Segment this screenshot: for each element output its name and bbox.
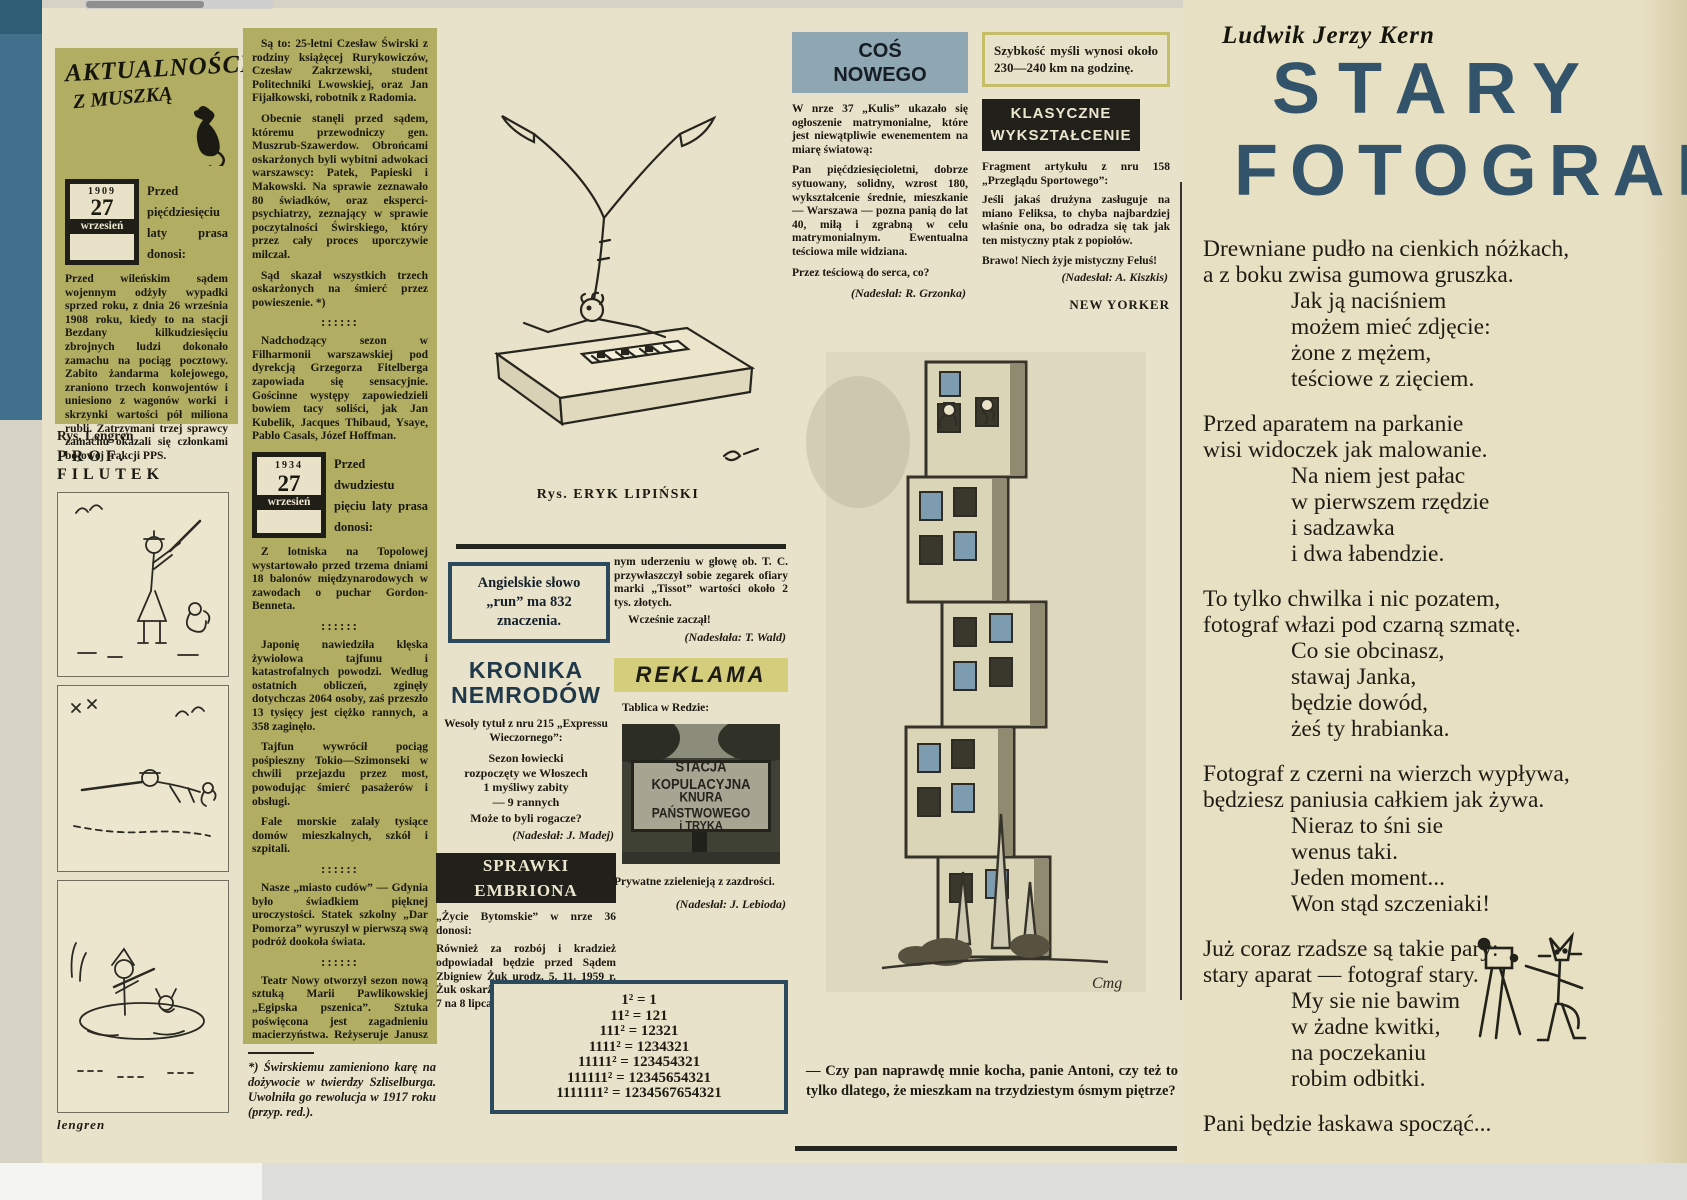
sprawki-credit: (Nadesłała: T. Wald) xyxy=(614,630,786,645)
footnote-rule xyxy=(248,1052,314,1054)
math-line: 111² = 12321 xyxy=(494,1024,784,1040)
lengren-signature: lengren xyxy=(57,1117,229,1133)
kronika-title: KRONIKA NEMRODÓW xyxy=(436,658,616,708)
klasyczne-banner: KLASYCZNE WYKSZTAŁCENIE xyxy=(982,99,1140,151)
poem-line: Jeden moment... xyxy=(1291,865,1687,891)
klasyczne-banner-line2: WYKSZTAŁCENIE xyxy=(990,127,1131,144)
filutek-title: PROF. FILUTEK xyxy=(57,448,229,484)
lead-1934: Przed dwudziestu pięciu laty prasa donos… xyxy=(334,452,428,538)
poem-title-line2: FOTOGRAF xyxy=(1234,130,1687,212)
reklama-body: Prywatne zzielenieją z zazdrości. xyxy=(614,876,788,890)
column-press-history: Są to: 25-letni Czesław Świrski z rodzin… xyxy=(243,28,437,1044)
poem-line: żone z mężem, xyxy=(1291,340,1687,366)
new-yorker-label: NEW YORKER xyxy=(982,297,1170,313)
sprawki-punchline: Wcześnie zaczął! xyxy=(614,614,788,628)
comic-panel-2-drawing xyxy=(58,686,226,866)
footnote-block: *) Świrskiemu zamieniono karę na dożywoc… xyxy=(248,1052,436,1120)
poem-line: Won stąd szczeniaki! xyxy=(1291,891,1687,917)
column-aktualnosci: AKTUALNOŚCI Z MUSZKĄ 1909 27 wrzesień Pr… xyxy=(55,48,238,424)
press-para-b: Obecnie stanęli przed sądem, któremu prz… xyxy=(252,113,428,263)
press-para-h: Fale morskie zalały tysiące domów mieszk… xyxy=(252,816,428,857)
comic-panel-1 xyxy=(57,492,229,677)
poem-closing-line: Pani będzie łaskawa spocząć... xyxy=(1203,1111,1687,1137)
sprawki-intro: „Życie Bytomskie” w nrze 36 donosi: xyxy=(436,911,616,938)
math-line: 11² = 121 xyxy=(494,1009,784,1025)
calendar-1934: 1934 27 wrzesień xyxy=(252,452,326,538)
poem-line: Nieraz to śni sie xyxy=(1291,813,1687,839)
klasyczne-credit: (Nadesłał: A. Kiszkis) xyxy=(982,270,1168,285)
poem-line: Przed aparatem na parkanie xyxy=(1203,411,1687,437)
kronika-quote-3: 1 myśliwy zabity xyxy=(436,780,616,795)
comic-panel-2 xyxy=(57,685,229,872)
reklama-credit: (Nadesłał: J. Lebioda) xyxy=(614,897,786,912)
sprawki-continued: nym uderzeniu w głowę ob. T. C. przywłas… xyxy=(614,556,788,610)
new-yorker-caption: — Czy pan naprawdę mnie kocha, panie Ant… xyxy=(806,1062,1178,1101)
cos-para-1: W nrze 37 „Kulis” ukazało się ogłoszenie… xyxy=(792,103,968,157)
conductor-cartoon xyxy=(442,36,794,482)
sprawki-banner: SPRAWKI EMBRIONA xyxy=(436,853,616,903)
artist-credit-lengren: Rys. Lengren xyxy=(57,428,229,444)
poem-line: To tylko chwilka i nic pozatem, xyxy=(1203,586,1687,612)
bottom-scan-corner xyxy=(0,1163,262,1200)
kronika-title-line1: KRONIKA xyxy=(469,657,583,683)
poem-stanza-1: Drewniane pudło na cienkich nóżkach, a z… xyxy=(1203,236,1687,392)
page-fold-line xyxy=(1180,182,1182,1000)
sign-line-3: i TRYKA xyxy=(634,819,768,832)
klasyczne-para-3: Brawo! Niech żyje mistyczny Feluś! xyxy=(982,255,1170,269)
poem-line: fotograf włazi pod czarną szmatę. xyxy=(1203,612,1687,638)
reklama-banner: REKLAMA xyxy=(614,658,788,692)
left-edge-strip xyxy=(0,0,42,420)
calendar-day: 27 xyxy=(70,197,134,219)
poem-author: Ludwik Jerzy Kern xyxy=(1222,22,1435,50)
date-block-1909: 1909 27 wrzesień Przed pięćdziesięciu la… xyxy=(65,179,228,265)
station-sign: STACJA KOPULACYJNA KNURA PAŃSTWOWEGO i T… xyxy=(631,760,771,832)
kronika-punchline: Może to byli rogacze? xyxy=(436,811,616,826)
dots-separator: :::::: xyxy=(252,864,428,873)
poem-line: stary aparat — fotograf stary. xyxy=(1203,962,1687,988)
poem-line: wisi widoczek jak malowanie. xyxy=(1203,437,1687,463)
poem-stanza-2: Przed aparatem na parkanie wisi widoczek… xyxy=(1203,411,1687,567)
dots-separator: :::::: xyxy=(252,621,428,630)
cos-banner-line1: COŚ xyxy=(858,40,901,62)
poem-line: będzie dowód, xyxy=(1291,690,1687,716)
poem-line: będziesz paniusia całkiem jak żywa. xyxy=(1203,787,1687,813)
sign-photo: STACJA KOPULACYJNA KNURA PAŃSTWOWEGO i T… xyxy=(622,724,780,864)
poem-line: a z boku zwisa gumowa gruszka. xyxy=(1203,262,1687,288)
calendar-month: wrzesień xyxy=(70,219,134,234)
cos-para-2: Pan pięćdziesięcioletni, dobrze sytuowan… xyxy=(792,164,968,259)
column-filutek: Rys. Lengren PROF. FILUTEK xyxy=(57,428,229,1133)
new-yorker-cartoon: Cmg xyxy=(796,352,1172,1052)
comic-panel-3-drawing xyxy=(58,881,226,1107)
klasyczne-para-1: Fragment artykułu z nru 158 „Przeglądu S… xyxy=(982,161,1170,188)
poem-line: Na niem jest pałac xyxy=(1291,463,1687,489)
dots-separator: :::::: xyxy=(252,957,428,966)
lead-1909: Przed pięćdziesięciu laty prasa donosi: xyxy=(147,179,228,265)
poem-line: żeś ty hrabianka. xyxy=(1291,716,1687,742)
section-rule xyxy=(456,544,786,549)
poem-stanza-5: Już coraz rzadsze są takie pary: stary a… xyxy=(1203,936,1687,1092)
column-reklama: nym uderzeniu w głowę ob. T. C. przywłas… xyxy=(614,556,788,920)
column-kronika: Angielskie słowo „run” ma 832 znaczenia.… xyxy=(436,556,616,1011)
press-para-g: Tajfun wywrócił pociąg pośpieszny Tokio—… xyxy=(252,741,428,809)
lipinski-credit: Rys. ERYK LIPIŃSKI xyxy=(442,487,794,503)
poem-line: w pierwszem rzędzie xyxy=(1291,489,1687,515)
poem-line: i dwa łabendzie. xyxy=(1291,541,1687,567)
mouse-icon xyxy=(186,102,230,166)
poem-title-line1: STARY xyxy=(1272,48,1598,130)
comic-panel-1-drawing xyxy=(58,493,226,671)
poem-line: robim odbitki. xyxy=(1291,1066,1687,1092)
kronika-title-line2: NEMRODÓW xyxy=(451,682,601,708)
poem-stanza-3: To tylko chwilka i nic pozatem, fotograf… xyxy=(1203,586,1687,742)
fact-box-run: Angielskie słowo „run” ma 832 znaczenia. xyxy=(448,562,610,643)
math-line: 11111² = 123454321 xyxy=(494,1055,784,1071)
dots-separator: :::::: xyxy=(252,317,428,326)
reklama-intro: Tablica w Redzie: xyxy=(614,702,788,716)
photographer-doodle xyxy=(1468,916,1598,1066)
kronika-credit: (Nadesłał: J. Madej) xyxy=(436,828,614,843)
press-para-a: Są to: 25-letni Czesław Świrski z rodzin… xyxy=(252,38,428,106)
poem-line: Jak ją naciśniem xyxy=(1291,288,1687,314)
calendar-day: 27 xyxy=(257,473,321,495)
comic-panel-3 xyxy=(57,880,229,1113)
press-para-j: Teatr Nowy otworzył sezon nową sztuką Ma… xyxy=(252,975,428,1044)
kronika-intro: Wesoły tytuł z nru 215 „Expressu Wieczor… xyxy=(436,718,616,745)
poem-line: Już coraz rzadsze są takie pary: xyxy=(1203,936,1687,962)
aktualnosci-logo-line1: AKTUALNOŚCI xyxy=(64,52,228,88)
footnote-text: *) Świrskiemu zamieniono karę na dożywoc… xyxy=(248,1060,436,1120)
speed-fact-box: Szybkość myśli wynosi około 230—240 km n… xyxy=(982,32,1170,87)
scrollbar-thumb[interactable] xyxy=(86,1,204,8)
column-klasyczne: Szybkość myśli wynosi około 230—240 km n… xyxy=(982,32,1170,313)
math-line: 111111² = 12345654321 xyxy=(494,1071,784,1087)
cos-banner-line2: NOWEGO xyxy=(833,64,926,86)
poem-stanza-4: Fotograf z czerni na wierzch wypływa, bę… xyxy=(1203,761,1687,917)
cos-para-3: Przez teściową do serca, co? xyxy=(792,267,968,281)
kronika-quote-4: — 9 rannych xyxy=(436,795,616,810)
math-line: 1² = 1 xyxy=(494,993,784,1009)
kronika-quote-2: rozpoczęty we Włoszech xyxy=(436,766,616,781)
left-edge-strip-dark xyxy=(0,0,42,34)
poem-line: teściowe z zięciem. xyxy=(1291,366,1687,392)
calendar-month: wrzesień xyxy=(257,495,321,510)
math-line: 1111² = 1234321 xyxy=(494,1040,784,1056)
calendar-1909: 1909 27 wrzesień xyxy=(65,179,139,265)
press-para-c: Sąd skazał wszystkich trzech oskarżonych… xyxy=(252,270,428,311)
press-para-i: Nasze „miasto cudów” — Gdynia było świad… xyxy=(252,882,428,950)
poem-line: wenus taki. xyxy=(1291,839,1687,865)
date-block-1934: 1934 27 wrzesień Przed dwudziestu pięciu… xyxy=(252,452,428,538)
photo-grass xyxy=(622,852,780,864)
magazine-spread: { "colors": { "paper_left": "#e9e2ca", "… xyxy=(0,0,1687,1200)
new-yorker-signature: Cmg xyxy=(1092,975,1122,992)
kronika-quote-1: Sezon łowiecki xyxy=(436,751,616,766)
poem-line: Fotograf z czerni na wierzch wypływa, xyxy=(1203,761,1687,787)
press-para-e: Z lotniska na Topolowej wystartowało prz… xyxy=(252,546,428,614)
poem-line: Drewniane pudło na cienkich nóżkach, xyxy=(1203,236,1687,262)
press-para-d: Nadchodzący sezon w Filharmonii warszaws… xyxy=(252,335,428,444)
poem-line: i sadzawka xyxy=(1291,515,1687,541)
sign-line-1: STACJA KOPULACYJNA xyxy=(634,757,768,792)
math-line: 1111111² = 1234567654321 xyxy=(494,1086,784,1102)
klasyczne-para-2: Jeśli jakaś drużyna zasługuje na miano F… xyxy=(982,194,1170,248)
poem-line: stawaj Janka, xyxy=(1291,664,1687,690)
cos-credit: (Nadesłał: R. Grzonka) xyxy=(792,286,966,301)
cos-nowego-banner: COŚ NOWEGO xyxy=(792,32,968,93)
math-curiosity-box: 1² = 1 11² = 121 111² = 12321 1111² = 12… xyxy=(490,980,788,1114)
column-cos-nowego: COŚ NOWEGO W nrze 37 „Kulis” ukazało się… xyxy=(792,32,968,309)
poem-body: Drewniane pudło na cienkich nóżkach, a z… xyxy=(1203,236,1687,1137)
poem-line: możem mieć zdjęcie: xyxy=(1291,314,1687,340)
sign-line-2: KNURA PAŃSTWOWEGO xyxy=(634,788,768,820)
klasyczne-banner-line1: KLASYCZNE xyxy=(1011,105,1112,122)
press-para-f: Japonię nawiedziła klęska żywiołowa tajf… xyxy=(252,639,428,734)
bottom-section-rule xyxy=(795,1146,1177,1151)
poem-line: Co sie obcinasz, xyxy=(1291,638,1687,664)
